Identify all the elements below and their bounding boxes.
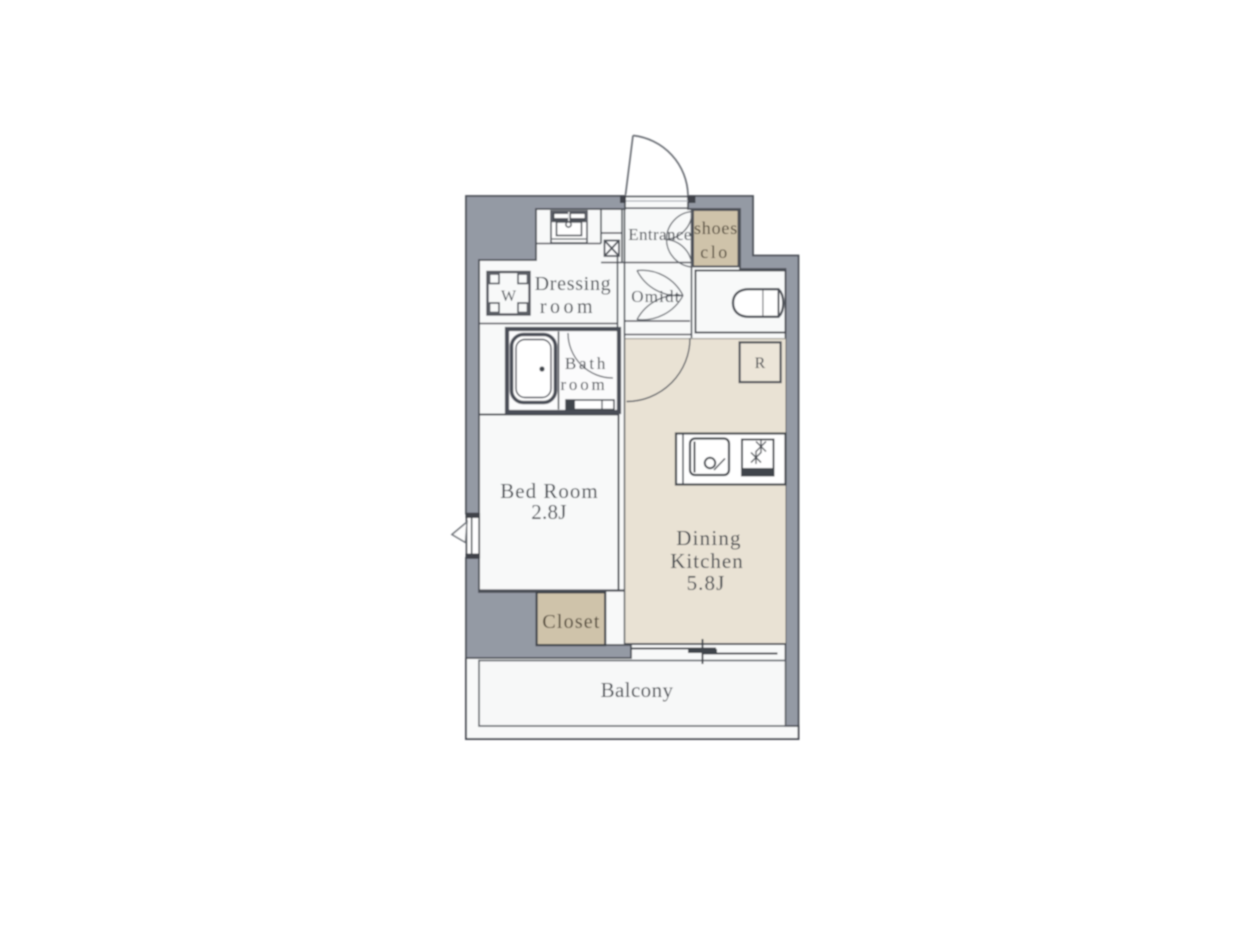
svg-text:Kitchen: Kitchen: [670, 549, 743, 573]
svg-text:Dining: Dining: [676, 526, 742, 550]
svg-text:room: room: [560, 375, 607, 394]
svg-text:Balcony: Balcony: [601, 678, 674, 702]
svg-text:Entrance: Entrance: [628, 225, 692, 244]
svg-text:clo: clo: [700, 242, 730, 262]
svg-text:Closet: Closet: [542, 611, 600, 633]
svg-text:Dressing: Dressing: [535, 273, 612, 295]
svg-text:Omidt: Omidt: [631, 287, 680, 306]
svg-text:Bath: Bath: [565, 354, 608, 373]
svg-text:5.8J: 5.8J: [687, 571, 726, 595]
svg-text:2.8J: 2.8J: [531, 500, 567, 524]
svg-text:shoes: shoes: [694, 218, 738, 238]
svg-text:W: W: [501, 288, 517, 305]
svg-text:room: room: [540, 296, 596, 318]
svg-text:R: R: [755, 355, 766, 372]
